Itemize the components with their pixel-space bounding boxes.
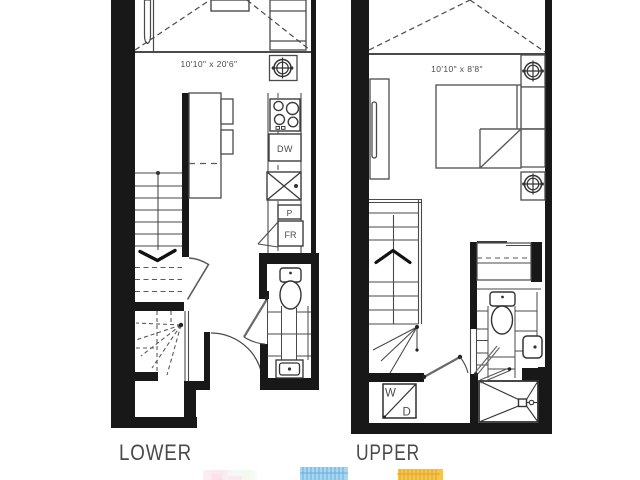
svg-text:UPPER: UPPER: [356, 440, 420, 465]
svg-text:P: P: [287, 208, 293, 218]
svg-text:W: W: [385, 388, 396, 400]
svg-text:FR: FR: [285, 230, 297, 240]
svg-text:LOWER: LOWER: [119, 440, 192, 465]
svg-text:10'10" x 8'8": 10'10" x 8'8": [431, 64, 483, 74]
svg-text:D: D: [403, 407, 411, 419]
svg-text:DW: DW: [277, 144, 293, 154]
svg-text:10'10" x 20'6": 10'10" x 20'6": [181, 59, 238, 69]
